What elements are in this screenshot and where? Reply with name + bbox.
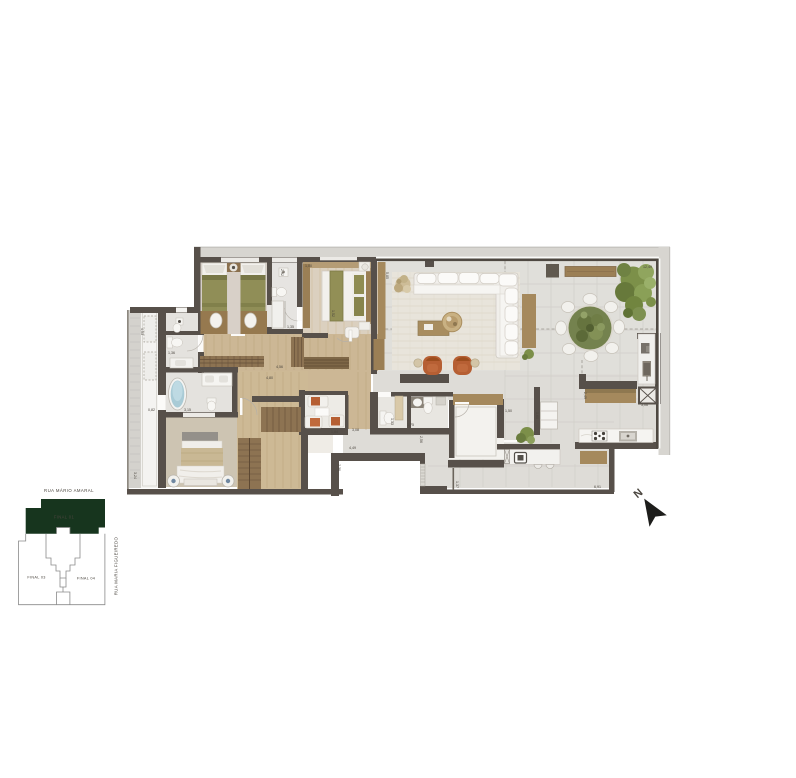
svg-text:5,85: 5,85 [385,272,389,279]
svg-text:1,00: 1,00 [305,264,312,268]
svg-text:4,56: 4,56 [276,365,283,369]
svg-text:RUA MARIA FIGUEIREDO: RUA MARIA FIGUEIREDO [114,537,119,596]
svg-text:4,80: 4,80 [266,376,273,380]
svg-text:FINAL 04: FINAL 04 [77,577,95,581]
svg-text:3,08: 3,08 [352,428,359,432]
svg-text:1,52: 1,52 [331,310,335,317]
svg-text:12,49: 12,49 [643,265,652,269]
svg-text:1,75: 1,75 [407,423,414,427]
svg-text:1,37: 1,37 [455,481,459,488]
svg-text:1,36: 1,36 [168,351,175,355]
svg-text:2,92: 2,92 [280,269,284,276]
svg-text:FINAL 01: FINAL 01 [54,515,75,520]
svg-text:3,24: 3,24 [133,472,137,479]
svg-text:4,53: 4,53 [140,328,144,335]
svg-text:1,33: 1,33 [390,418,394,425]
svg-text:RUA MÁRIO AMARAL: RUA MÁRIO AMARAL [44,488,94,493]
svg-text:6,91: 6,91 [594,485,601,489]
svg-text:3,15: 3,15 [184,408,191,412]
svg-text:5,06: 5,06 [641,403,648,407]
svg-text:1,50: 1,50 [505,409,512,413]
svg-text:1,60: 1,60 [535,412,539,419]
svg-text:0,82: 0,82 [148,408,155,412]
svg-text:1,35: 1,35 [287,325,294,329]
svg-text:FINAL 03: FINAL 03 [27,576,45,580]
svg-text:2,56: 2,56 [419,436,423,443]
svg-text:2,30: 2,30 [337,464,341,471]
svg-text:1,84: 1,84 [331,430,338,434]
svg-text:2,49: 2,49 [583,392,587,399]
svg-text:4,49: 4,49 [349,446,356,450]
